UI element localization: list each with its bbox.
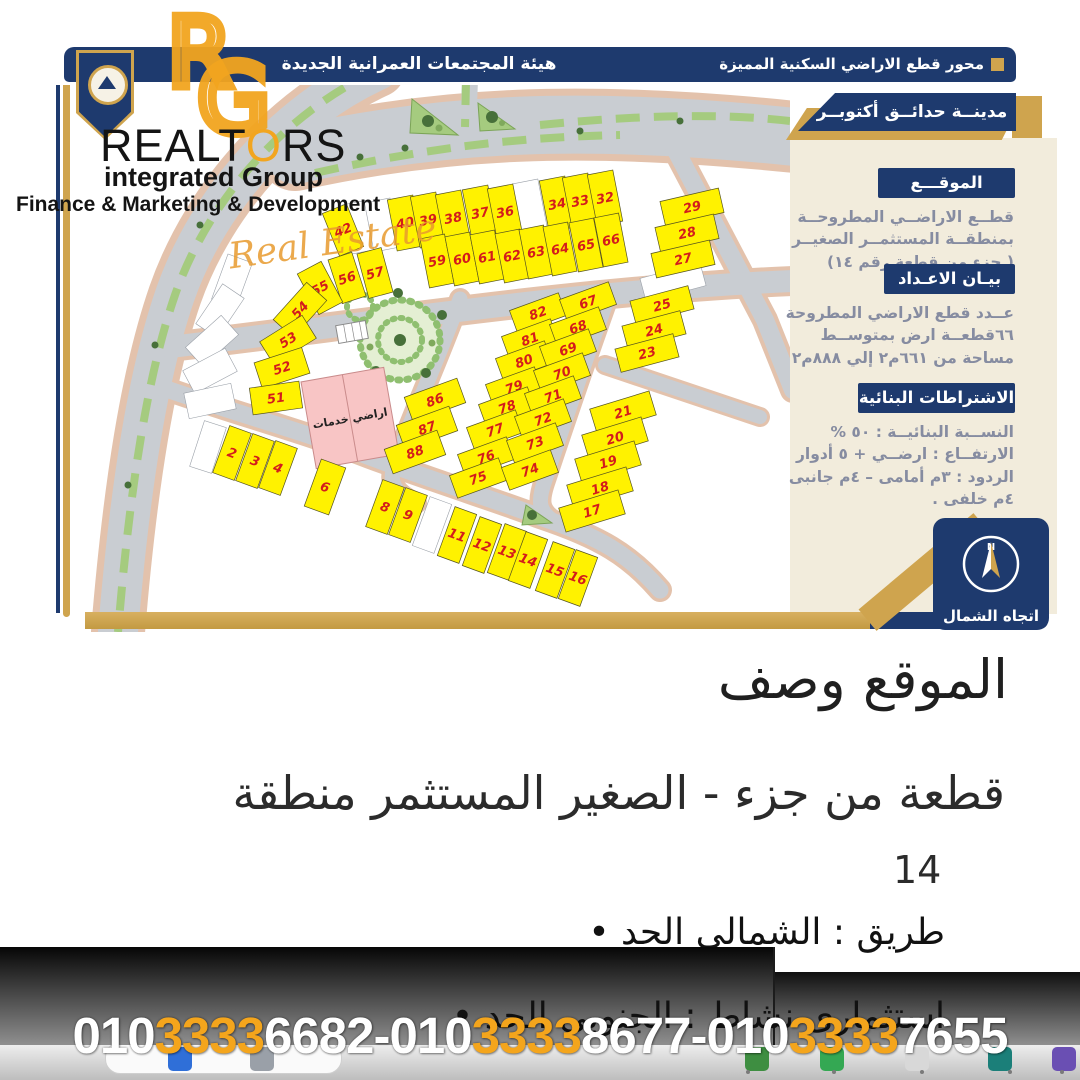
conditions-line-1: النســبة البنائيــة : ٥٠ % xyxy=(789,421,1014,443)
taskbar-indicator-dot xyxy=(832,1070,836,1074)
compass-icon: N xyxy=(933,518,1049,606)
section-count-text: عــدد قطع الاراضي المطروحة ٦٦قطعــة ارض … xyxy=(786,302,1014,369)
section-conditions-text: النســبة البنائيــة : ٥٠ % الارتفــاع : … xyxy=(789,421,1014,511)
description-plot-number: 14 xyxy=(893,848,941,892)
north-compass: N اتجاه الشمال xyxy=(933,518,1049,630)
count-line-1: عــدد قطع الاراضي المطروحة xyxy=(786,302,1014,324)
compass-label: اتجاه الشمال xyxy=(933,607,1049,625)
plot-6: 6 xyxy=(304,459,346,515)
phone-numbers[interactable]: 01033336682-01033338677-01033337655 xyxy=(0,1006,1080,1065)
axis-title: محور قطع الاراضي السكنية المميزة xyxy=(719,55,984,73)
pyramid-icon xyxy=(98,76,116,89)
nuca-emblem-icon xyxy=(88,65,128,105)
city-tab: مدينــة حدائــق أكتوبــر xyxy=(798,93,1016,131)
location-line-2: بمنطقــة المستثمــر الصغيــر xyxy=(792,228,1014,250)
section-title-location: الموقـــع xyxy=(878,168,1015,198)
plot-51: 51 xyxy=(249,381,302,415)
taskbar-indicator-dot xyxy=(920,1070,924,1074)
taskbar-indicator-dot xyxy=(1060,1070,1064,1074)
section-title-count: بيـان الاعـداد xyxy=(884,264,1015,294)
conditions-line-4: ٤م خلفى . xyxy=(789,488,1014,510)
count-line-3: مساحة من ٦٦١م٢ إلي ٨٨٨م٢ xyxy=(786,347,1014,369)
section-title-conditions: الاشتراطات البنائية xyxy=(858,383,1015,413)
brand-subtitle: integrated Group xyxy=(104,162,323,193)
conditions-line-3: الردود : ٣م أمامى – ٤م جانبى xyxy=(789,466,1014,488)
taskbar-indicator-dot xyxy=(1008,1070,1012,1074)
service-land-block: اراضي خدمات xyxy=(301,367,399,468)
flyer-canvas: هيئة المجتمعات العمرانية الجديدة محور قط… xyxy=(0,0,1080,1080)
city-tab-gold-sliver xyxy=(1012,96,1042,138)
taskbar-indicator-dot xyxy=(746,1070,750,1074)
conditions-line-2: الارتفــاع : ارضــي + ٥ أدوار xyxy=(789,443,1014,465)
frame-bottom-gold xyxy=(85,612,875,629)
brand-tagline: Finance & Marketing & Development xyxy=(16,193,380,217)
frame-left-gold xyxy=(63,85,70,617)
count-line-2: ٦٦قطعــة ارض بمتوســط xyxy=(786,324,1014,346)
description-area-line: منطقة‎ ‎المستثمر‎ ‎الصغير‎ ‎-‎ ‎جزء‎ ‎من… xyxy=(232,766,1005,820)
axis-title-wrap: محور قطع الاراضي السكنية المميزة xyxy=(719,55,1004,73)
frame-left-navy xyxy=(56,85,60,613)
description-title: وصف‎ ‎الموقع xyxy=(718,648,1008,711)
svg-text:51: 51 xyxy=(266,390,286,407)
gold-square-icon xyxy=(991,58,1004,71)
location-line-1: قطــع الاراضــي المطروحــة xyxy=(792,206,1014,228)
